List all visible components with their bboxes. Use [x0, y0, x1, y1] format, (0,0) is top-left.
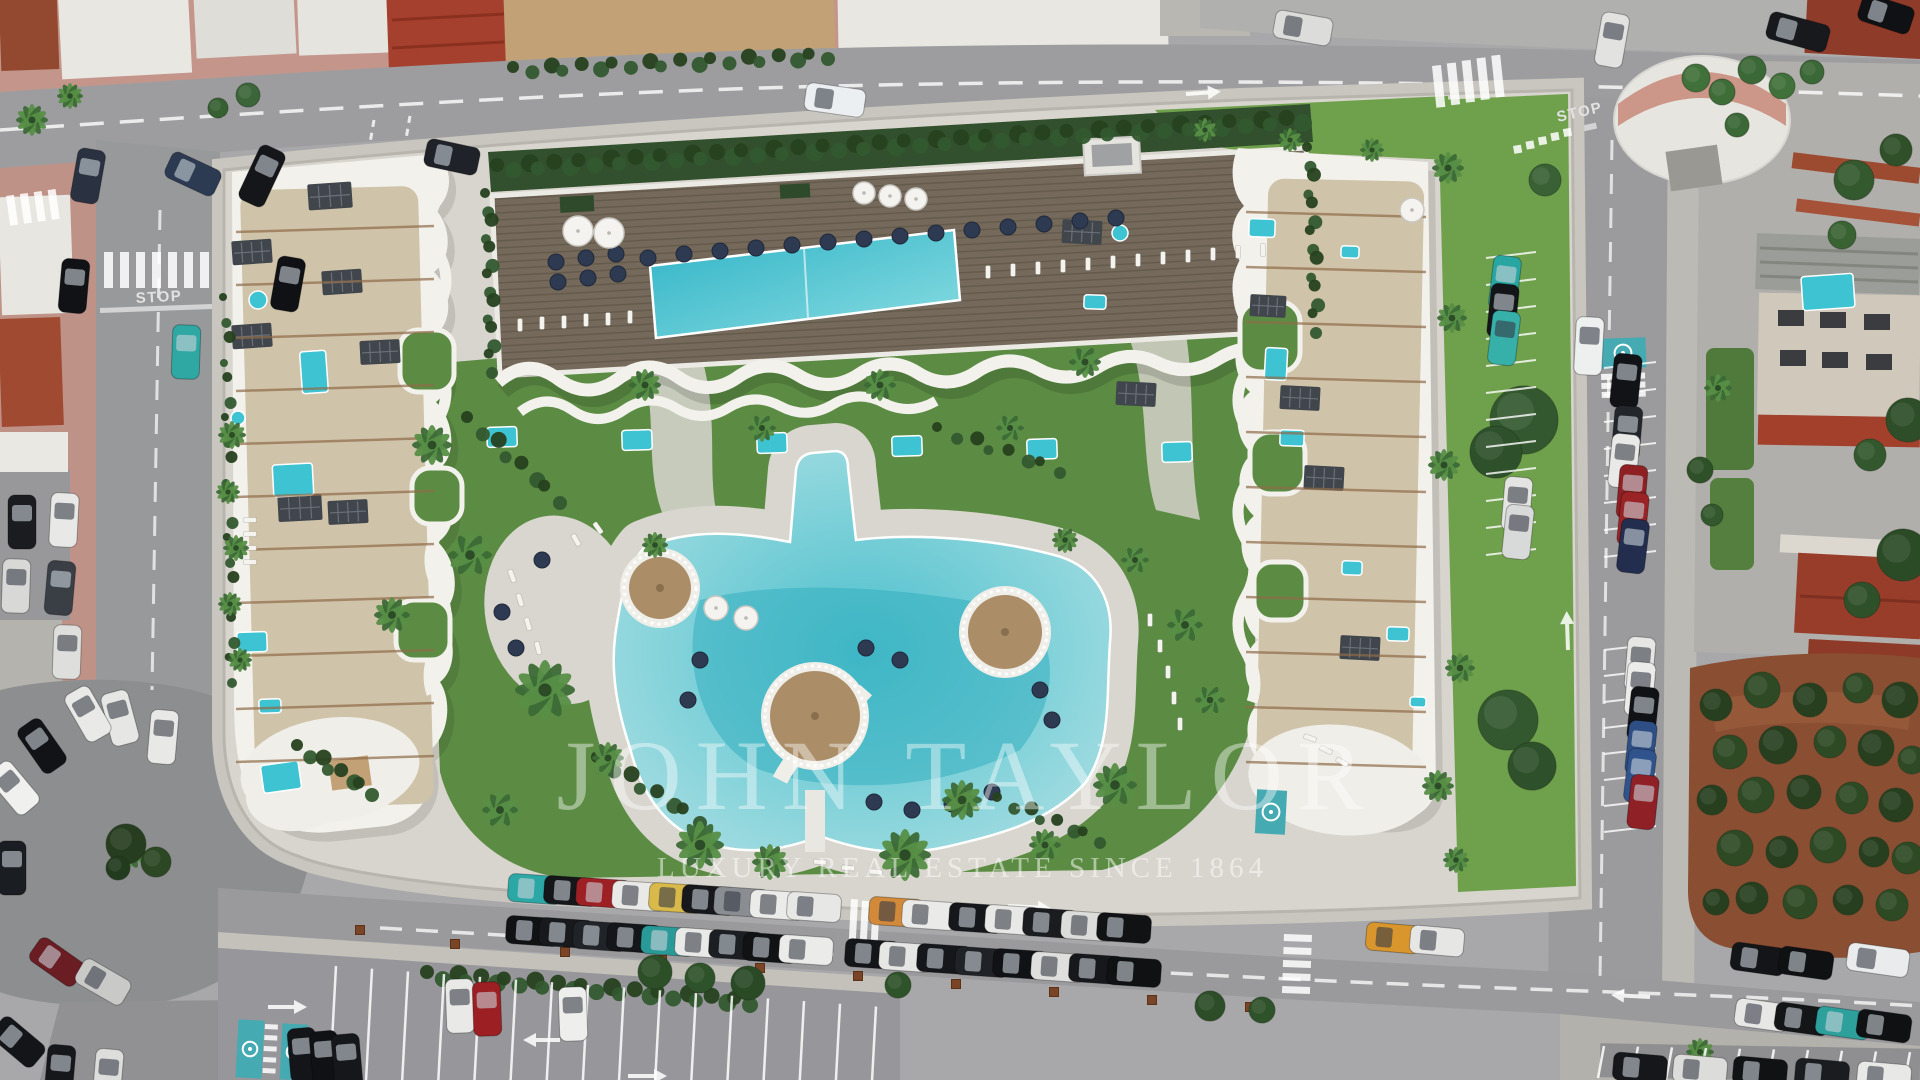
sun-lounger: [1011, 264, 1016, 277]
tree: [1725, 113, 1749, 137]
hedge-bush: [856, 142, 870, 156]
palm-center: [227, 601, 232, 606]
hedge-bush: [506, 162, 522, 178]
tree: [1687, 457, 1713, 483]
pool-island: [761, 662, 869, 770]
tree-highlight: [144, 850, 161, 867]
hedge-bush: [587, 157, 603, 173]
car-windshield: [6, 569, 27, 586]
pergola: [231, 239, 273, 266]
sun-lounger: [584, 314, 589, 327]
hedge-bush: [484, 349, 494, 359]
tree: [1195, 991, 1225, 1021]
sun-lounger: [841, 865, 854, 871]
sun-lounger: [813, 859, 826, 865]
car-windshield: [98, 1058, 119, 1076]
car-windshield: [926, 948, 944, 969]
hedge-bush: [227, 571, 239, 583]
hedge-bush: [897, 134, 911, 148]
car-windshield: [1740, 947, 1759, 969]
car: [1, 559, 31, 614]
hedge-bush: [485, 213, 499, 227]
car-body: [44, 560, 77, 616]
tree: [1858, 730, 1894, 766]
car-windshield: [1622, 1057, 1640, 1078]
sun-lounger: [1211, 248, 1216, 261]
tree-highlight: [1703, 506, 1715, 518]
car-body: [472, 982, 502, 1037]
bean-bag: [964, 222, 980, 238]
car-windshield: [64, 268, 85, 286]
crosswalk-stripe: [262, 1068, 275, 1074]
bean-bag: [680, 692, 696, 708]
palm-center: [1007, 425, 1013, 431]
white-umbrella: [734, 606, 758, 630]
car: [1612, 1052, 1668, 1080]
hedge-bush: [486, 367, 498, 379]
hedge-bush: [992, 792, 1002, 802]
hedge-bush: [1022, 455, 1036, 469]
car-body: [1487, 309, 1521, 366]
palm-center: [1207, 697, 1214, 704]
tree-highlight: [1703, 692, 1721, 710]
hedge-bush: [1019, 132, 1033, 146]
car-body: [1501, 504, 1534, 561]
hedge-bush: [1278, 110, 1294, 126]
car-windshield: [1106, 917, 1124, 938]
crosswalk-stripe: [1284, 934, 1312, 942]
island-center: [811, 712, 819, 720]
palm-center: [388, 611, 396, 619]
stop-marking-left: STOP: [135, 288, 182, 307]
car: [8, 495, 36, 549]
tree-highlight: [1690, 460, 1704, 474]
tree-highlight: [1890, 402, 1914, 426]
car-windshield: [54, 502, 75, 519]
car-body: [445, 979, 475, 1034]
sun-lounger: [540, 317, 545, 330]
hedge-bush: [316, 750, 332, 766]
car-windshield: [788, 939, 806, 960]
car-windshield: [553, 880, 571, 901]
umbrella-pole: [1410, 208, 1414, 212]
hedge-bush: [1141, 119, 1155, 133]
palm-center: [641, 381, 648, 388]
car-body: [52, 625, 82, 680]
car-windshield: [78, 158, 101, 177]
hedge-bush: [803, 48, 815, 60]
tree: [1880, 134, 1912, 166]
car-windshield: [1633, 696, 1655, 714]
hedge-bush: [953, 129, 969, 145]
car: [0, 841, 26, 895]
tree: [1882, 682, 1918, 718]
hedge-bush: [226, 517, 238, 529]
hedge-bush: [1075, 128, 1091, 144]
bean-bag: [534, 552, 550, 568]
hedge-bush: [1035, 815, 1045, 825]
tree: [1810, 827, 1846, 863]
hedge-bush: [937, 137, 951, 151]
bean-bag: [904, 802, 920, 818]
hedge-bush: [734, 143, 748, 157]
roof-block: [0, 0, 59, 71]
tree-highlight: [1883, 137, 1901, 155]
hedge-bush: [486, 293, 500, 307]
car-windshield: [1617, 415, 1638, 433]
tree: [1833, 885, 1863, 915]
tree: [1738, 777, 1774, 813]
hedge-bush: [790, 139, 806, 155]
terrace-pool: [1342, 561, 1362, 576]
car-windshield: [2, 851, 22, 867]
bean-bag: [1072, 213, 1088, 229]
car-body: [786, 891, 842, 923]
tree-highlight: [1772, 76, 1786, 90]
palm-center: [876, 381, 883, 388]
crosswalk-stripe: [1563, 128, 1572, 137]
crosswalk-stripe: [1513, 145, 1522, 154]
car-windshield: [994, 909, 1012, 930]
hedge-bush: [1238, 118, 1254, 134]
hedge-bush: [709, 144, 725, 160]
hedge-bush: [365, 788, 379, 802]
hedge-bush: [978, 129, 992, 143]
hedge-bush: [1309, 279, 1321, 291]
crosswalk-stripe: [120, 252, 129, 288]
car-windshield: [1116, 961, 1134, 982]
hedge-bush: [334, 763, 348, 777]
crosswalk-stripe: [263, 1057, 276, 1063]
pool-island: [620, 548, 700, 628]
hedge-bush: [483, 241, 495, 253]
hedge-bush: [693, 152, 707, 166]
hedge-bush: [1310, 327, 1322, 339]
car-windshield: [1784, 1007, 1803, 1029]
sun-lounger: [244, 518, 257, 523]
tree-highlight: [1532, 167, 1550, 185]
tree: [885, 972, 911, 998]
car-windshield: [1622, 474, 1643, 492]
terrace-pool: [1264, 347, 1288, 380]
hedge-bush: [525, 65, 539, 79]
tree-highlight: [1716, 738, 1735, 757]
hedge-bush: [1054, 467, 1066, 479]
sun-lounger: [986, 266, 991, 279]
palm-center: [1181, 621, 1189, 629]
hedge-bush: [677, 802, 689, 814]
car-windshield: [1002, 953, 1020, 974]
white-roof: [193, 0, 296, 59]
car-windshield: [658, 887, 676, 908]
pergola: [1279, 385, 1320, 411]
sun-lounger: [1111, 256, 1116, 269]
car-windshield: [1070, 915, 1088, 936]
car-windshield: [1633, 784, 1655, 802]
tree-highlight: [108, 858, 121, 871]
car-windshield: [12, 505, 32, 521]
car: [1409, 925, 1465, 958]
tree-highlight: [641, 958, 660, 977]
tree: [1828, 221, 1856, 249]
car: [147, 709, 180, 765]
sun-lounger: [518, 319, 523, 332]
pergola: [307, 181, 353, 210]
hedge-bush: [1306, 196, 1318, 208]
car: [1487, 309, 1521, 366]
terrace-pool: [259, 699, 281, 714]
palm-center: [1449, 315, 1456, 322]
car: [1616, 517, 1650, 574]
umbrella-pole: [888, 194, 892, 198]
car-windshield: [718, 934, 736, 955]
pergola: [277, 494, 322, 522]
terrace-pool: [892, 435, 923, 456]
car: [778, 934, 834, 966]
tree-highlight: [1748, 676, 1768, 696]
tree-highlight: [1846, 676, 1863, 693]
palm-center: [1444, 164, 1451, 171]
car-windshield: [1866, 1066, 1884, 1080]
palm-center: [604, 754, 611, 761]
palm-center: [1440, 461, 1447, 468]
tree-highlight: [1700, 788, 1717, 805]
tree: [208, 98, 228, 118]
bean-bag: [640, 250, 656, 266]
sun-lounger: [244, 532, 257, 537]
hedge-bush: [575, 57, 589, 71]
car-windshield: [854, 943, 872, 964]
hedge-bush: [221, 318, 231, 328]
white-roof: [58, 0, 192, 79]
house-window: [1822, 352, 1848, 368]
tree-highlight: [1252, 1000, 1266, 1014]
sun-lounger: [1061, 260, 1066, 273]
car-windshield: [585, 882, 603, 903]
tree-highlight: [1706, 892, 1720, 906]
tree-highlight: [1836, 888, 1853, 905]
hedge-bush: [970, 431, 984, 445]
tree-highlight: [110, 828, 132, 850]
hedge-bush: [480, 188, 490, 198]
hedge-bush: [531, 162, 545, 176]
hedge-bush: [775, 147, 789, 161]
bean-bag: [858, 640, 874, 656]
car-windshield: [1631, 730, 1653, 748]
crosswalk-stripe: [168, 252, 177, 288]
car-windshield: [1623, 528, 1645, 547]
hedge-bush: [497, 971, 511, 985]
crosswalk-stripe: [1283, 947, 1311, 955]
street-planter: [1148, 996, 1157, 1005]
car-windshield: [50, 1054, 71, 1072]
bean-bag: [784, 237, 800, 253]
car-windshield: [888, 946, 906, 967]
house-window: [1820, 312, 1846, 328]
terrace-pool: [260, 760, 302, 793]
bean-bag: [494, 604, 510, 620]
hedge-bush: [222, 372, 232, 382]
car-windshield: [1682, 1059, 1700, 1080]
tree-highlight: [1882, 534, 1911, 563]
bean-bag: [892, 228, 908, 244]
car-windshield: [1508, 514, 1530, 532]
bean-bag: [580, 270, 596, 286]
car: [49, 492, 80, 547]
tree-highlight: [238, 85, 251, 98]
sun-lounger: [1161, 252, 1166, 265]
hedge-bush: [650, 784, 664, 798]
terrace-pool: [272, 463, 314, 497]
hedge-bush: [485, 321, 497, 333]
sun-lounger: [1178, 718, 1183, 731]
gray-panel: [1665, 145, 1722, 192]
palm-center: [1081, 358, 1088, 365]
hedge-bush: [1302, 142, 1312, 152]
car-windshield: [621, 885, 639, 906]
bean-bag: [748, 240, 764, 256]
tree-highlight: [1879, 892, 1897, 910]
bean-bag: [578, 250, 594, 266]
tree-highlight: [1848, 586, 1868, 606]
palm-center: [652, 542, 658, 548]
street-planter: [451, 940, 460, 949]
crosswalk-stripe: [1283, 960, 1311, 968]
white-umbrella: [879, 185, 901, 207]
car-windshield: [1614, 443, 1636, 461]
car-windshield: [1788, 951, 1807, 973]
tree-highlight: [1886, 686, 1906, 706]
house-window: [1866, 354, 1892, 370]
hedge-bush: [490, 158, 504, 172]
car: [786, 891, 842, 923]
hedge-bush: [514, 456, 528, 470]
tree-highlight: [1814, 831, 1834, 851]
sun-lounger: [1036, 262, 1041, 275]
hedge-bush: [1222, 114, 1236, 128]
tree-highlight: [1790, 778, 1809, 797]
car-body: [49, 492, 80, 547]
car: [44, 1044, 77, 1080]
palm-center: [766, 858, 774, 866]
hedge-bush: [653, 148, 667, 162]
pergola: [327, 499, 368, 525]
car-windshield: [1040, 956, 1058, 977]
car-body: [1096, 912, 1152, 944]
tree-highlight: [1763, 730, 1784, 751]
sun-lounger: [628, 311, 633, 324]
tree: [1697, 785, 1727, 815]
crosswalk-stripe: [152, 252, 161, 288]
hedge-bush: [1025, 801, 1039, 815]
tree: [638, 955, 672, 989]
bean-bag: [1032, 682, 1048, 698]
car: [445, 979, 475, 1034]
tree-highlight: [1796, 686, 1815, 705]
tree: [1736, 882, 1768, 914]
car-windshield: [1602, 22, 1625, 41]
palm-center: [229, 432, 235, 438]
tree-highlight: [1838, 164, 1860, 186]
sun-lounger: [1148, 614, 1153, 627]
crosswalk-stripe: [1550, 132, 1559, 141]
palm-center: [67, 93, 73, 99]
car-windshield: [759, 894, 777, 915]
tree-highlight: [688, 966, 705, 983]
deck-planter: [780, 183, 811, 199]
crosswalk-stripe: [1282, 973, 1310, 981]
sun-lounger: [1261, 244, 1266, 257]
car-windshield: [814, 87, 835, 109]
hedge-bush: [634, 783, 646, 795]
car: [52, 625, 82, 680]
hedge-bush: [612, 157, 626, 171]
tree-highlight: [734, 969, 753, 988]
umbrella-pole: [744, 616, 748, 620]
palm-center: [1434, 782, 1441, 789]
car-windshield: [1032, 912, 1050, 933]
car-windshield: [964, 951, 982, 972]
hedge-bush: [665, 991, 681, 1007]
sun-lounger: [869, 869, 882, 875]
car: [1574, 316, 1605, 375]
car-body: [1616, 517, 1650, 574]
sun-lounger: [1086, 258, 1091, 271]
garden: [1706, 348, 1754, 470]
hedge-bush: [912, 138, 928, 154]
hedge-bush: [1003, 444, 1015, 456]
hedge-bush: [507, 61, 519, 73]
bean-bag: [1036, 216, 1052, 232]
car-windshield: [878, 901, 896, 922]
white-umbrella: [1400, 198, 1424, 222]
tree-highlight: [1741, 59, 1756, 74]
pergola: [1249, 294, 1286, 318]
bean-bag: [856, 231, 872, 247]
car-windshield: [1616, 363, 1638, 381]
car-windshield: [1495, 265, 1517, 284]
palm-center: [958, 796, 967, 805]
aerial-render: STOP STOP JOHN TAYLOR LUXURY REAL ESTATE…: [0, 0, 1920, 1080]
bean-bag: [820, 234, 836, 250]
car-body: [1609, 353, 1642, 410]
crosswalk-stripe: [184, 252, 193, 288]
pergola: [1303, 465, 1344, 491]
tree: [1814, 726, 1846, 758]
tree-highlight: [1712, 82, 1726, 96]
palm-center: [1132, 557, 1138, 563]
sun-lounger: [562, 316, 567, 329]
car-windshield: [752, 937, 770, 958]
hedge-bush: [512, 978, 528, 994]
hedge-bush: [1051, 814, 1063, 826]
tree: [1844, 582, 1880, 618]
hedge-bush: [556, 65, 568, 77]
tree-highlight: [1839, 785, 1857, 803]
palm-center: [695, 840, 706, 851]
tree: [1836, 782, 1868, 814]
hedge-bush: [1308, 308, 1318, 318]
car-windshield: [548, 922, 566, 943]
car-windshield: [449, 989, 470, 1006]
car-windshield: [911, 904, 929, 925]
tree-highlight: [1786, 888, 1805, 907]
car-windshield: [1804, 1063, 1822, 1080]
tree-highlight: [1685, 67, 1700, 82]
sun-lounger: [1166, 666, 1171, 679]
hedge-bush: [627, 981, 643, 997]
umbrella-pole: [714, 606, 718, 610]
